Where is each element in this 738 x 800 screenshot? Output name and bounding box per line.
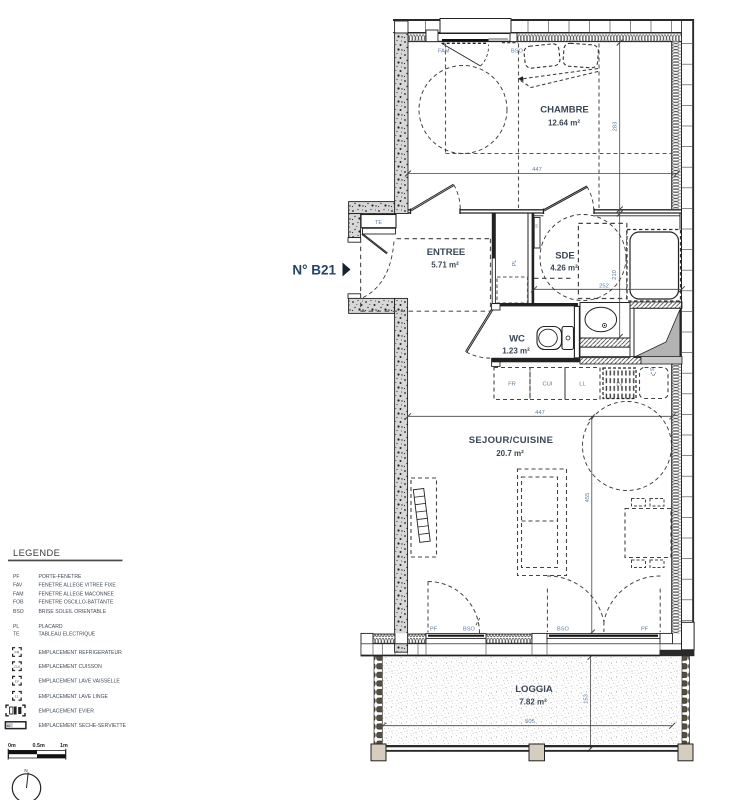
svg-text:4.26 m²: 4.26 m² [550, 264, 578, 273]
svg-text:FR: FR [15, 651, 20, 655]
svg-text:PL: PL [512, 260, 518, 267]
svg-text:FENETRE OSCILLO-BATTANTE: FENETRE OSCILLO-BATTANTE [39, 600, 114, 606]
svg-text:447: 447 [535, 410, 545, 416]
svg-text:1m: 1m [60, 743, 68, 749]
svg-text:EMPLACEMENT LAVE VAISSELLE: EMPLACEMENT LAVE VAISSELLE [39, 679, 121, 685]
svg-text:EMPLACEMENT EVIER: EMPLACEMENT EVIER [39, 708, 95, 714]
svg-text:447: 447 [532, 167, 542, 173]
svg-text:455: 455 [585, 493, 591, 503]
svg-text:PF: PF [13, 574, 20, 580]
svg-text:PF: PF [430, 627, 438, 633]
svg-text:210: 210 [612, 270, 618, 280]
svg-text:FOB: FOB [13, 600, 24, 606]
svg-text:LOGGIA: LOGGIA [515, 684, 553, 695]
svg-text:1.23 m²: 1.23 m² [502, 347, 530, 356]
svg-text:TE: TE [13, 632, 20, 638]
svg-text:TE: TE [375, 220, 382, 226]
svg-text:M: M [650, 367, 654, 372]
svg-text:ss: ss [533, 224, 538, 228]
svg-text:252: 252 [599, 284, 609, 290]
svg-text:12.64 m²: 12.64 m² [548, 119, 580, 128]
svg-text:ss: ss [7, 724, 11, 728]
svg-text:CUI: CUI [14, 665, 20, 669]
svg-text:N: N [24, 768, 27, 773]
svg-text:EMPLACEMENT LAVE LINGE: EMPLACEMENT LAVE LINGE [39, 694, 109, 700]
svg-text:CHAMBRE: CHAMBRE [540, 105, 589, 116]
svg-text:BSO: BSO [511, 49, 523, 55]
svg-text:EMPLACEMENT SECHE-SERVIETTE: EMPLACEMENT SECHE-SERVIETTE [39, 723, 127, 729]
svg-text:LV: LV [616, 382, 623, 388]
svg-text:LEGENDE: LEGENDE [13, 548, 60, 558]
svg-text:BSO: BSO [13, 609, 24, 615]
svg-text:BRISE SOLEIL ORIENTABLE: BRISE SOLEIL ORIENTABLE [39, 609, 107, 615]
svg-text:FENETRE ALLEGE MACONNEE: FENETRE ALLEGE MACONNEE [39, 592, 115, 598]
svg-text:7.82 m²: 7.82 m² [519, 698, 547, 707]
svg-text:LL: LL [15, 695, 19, 699]
svg-text:FAM: FAM [13, 592, 23, 598]
svg-text:5.71 m²: 5.71 m² [431, 261, 459, 270]
svg-text:FR: FR [508, 382, 516, 388]
svg-text:505: 505 [525, 719, 535, 725]
svg-text:CUI: CUI [543, 382, 553, 388]
svg-text:EMPLACEMENT REFRIGERATEUR: EMPLACEMENT REFRIGERATEUR [39, 650, 123, 656]
svg-text:LL: LL [579, 382, 586, 388]
svg-text:20.7 m²: 20.7 m² [496, 449, 524, 458]
svg-text:N° B21: N° B21 [292, 263, 336, 278]
svg-text:283: 283 [613, 122, 619, 132]
svg-text:WC: WC [509, 334, 525, 345]
svg-text:LV: LV [15, 679, 20, 683]
svg-text:PL: PL [13, 624, 19, 630]
svg-text:SDE: SDE [555, 251, 575, 262]
svg-text:FAV: FAV [13, 582, 23, 588]
svg-text:BSO: BSO [463, 627, 475, 633]
svg-text:FAM: FAM [438, 49, 450, 55]
svg-text:PLACARD: PLACARD [39, 624, 63, 630]
svg-text:0.5m: 0.5m [33, 743, 45, 749]
svg-text:EMPLACEMENT CUISSON: EMPLACEMENT CUISSON [39, 664, 103, 670]
svg-text:PORTE-FENETRE: PORTE-FENETRE [39, 574, 83, 580]
svg-text:TABLEAU ELECTRIQUE: TABLEAU ELECTRIQUE [39, 632, 96, 638]
svg-text:FENETRE ALLEGE VITREE FIXE: FENETRE ALLEGE VITREE FIXE [39, 582, 117, 588]
svg-text:0m: 0m [8, 743, 16, 749]
svg-text:BSO: BSO [557, 627, 569, 633]
svg-text:SEJOUR/CUISINE: SEJOUR/CUISINE [469, 435, 553, 446]
svg-text:ENTREE: ENTREE [427, 247, 466, 258]
svg-text:PF: PF [641, 627, 649, 633]
